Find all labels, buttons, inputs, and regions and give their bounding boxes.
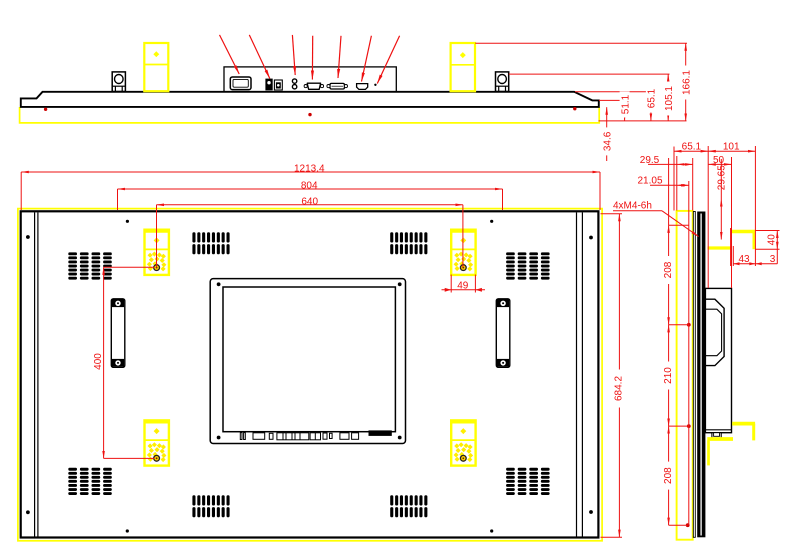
svg-text:4xM4-6h: 4xM4-6h [613,201,652,212]
svg-text:29.65: 29.65 [717,165,728,190]
svg-text:101: 101 [723,142,740,153]
svg-text:51.1: 51.1 [620,94,631,114]
svg-text:208: 208 [663,261,674,278]
svg-text:1213.4: 1213.4 [294,164,325,175]
svg-text:105.1: 105.1 [664,86,675,111]
svg-text:804: 804 [301,181,318,192]
svg-text:640: 640 [301,196,318,207]
svg-text:65.1: 65.1 [682,142,702,153]
svg-text:166.1: 166.1 [681,70,692,95]
svg-text:684.2: 684.2 [614,376,625,401]
svg-text:50: 50 [713,155,725,166]
svg-text:29.5: 29.5 [640,155,660,166]
svg-text:43: 43 [738,254,750,265]
svg-text:400: 400 [93,353,104,370]
svg-text:49: 49 [457,281,469,292]
svg-text:210: 210 [663,367,674,384]
svg-text:65.1: 65.1 [647,88,658,108]
svg-text:40: 40 [767,234,778,246]
svg-text:3: 3 [770,254,776,265]
svg-text:208: 208 [663,467,674,484]
svg-text:21.05: 21.05 [637,176,662,187]
svg-text:34.6: 34.6 [602,131,613,151]
